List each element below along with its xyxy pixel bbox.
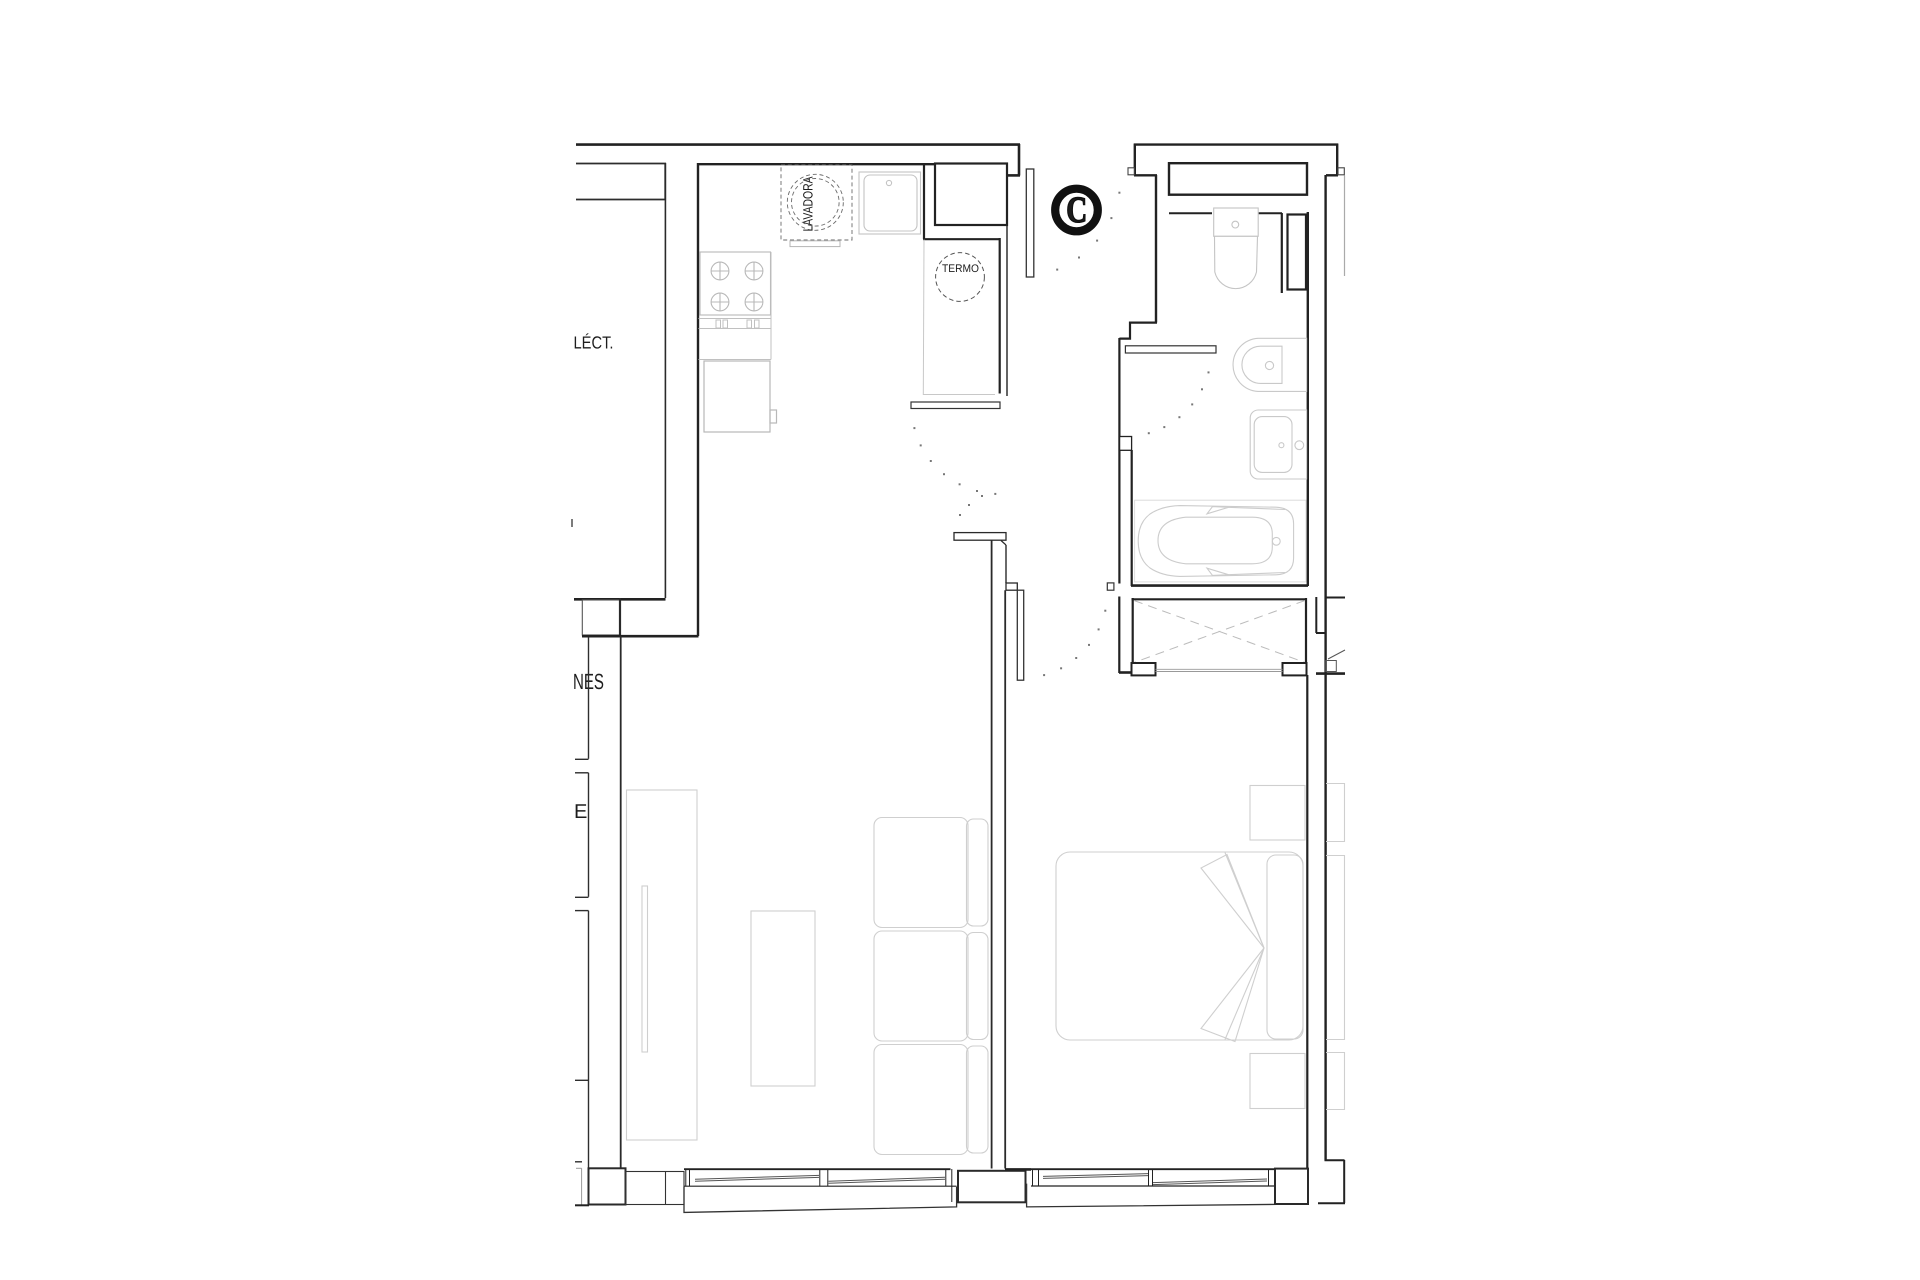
svg-text:LÉCT.: LÉCT. — [574, 333, 614, 353]
svg-text:E: E — [574, 801, 587, 823]
svg-text:LAVADORA: LAVADORA — [801, 177, 816, 232]
svg-text:TERMO: TERMO — [942, 263, 979, 275]
svg-text:C: C — [1066, 190, 1087, 231]
